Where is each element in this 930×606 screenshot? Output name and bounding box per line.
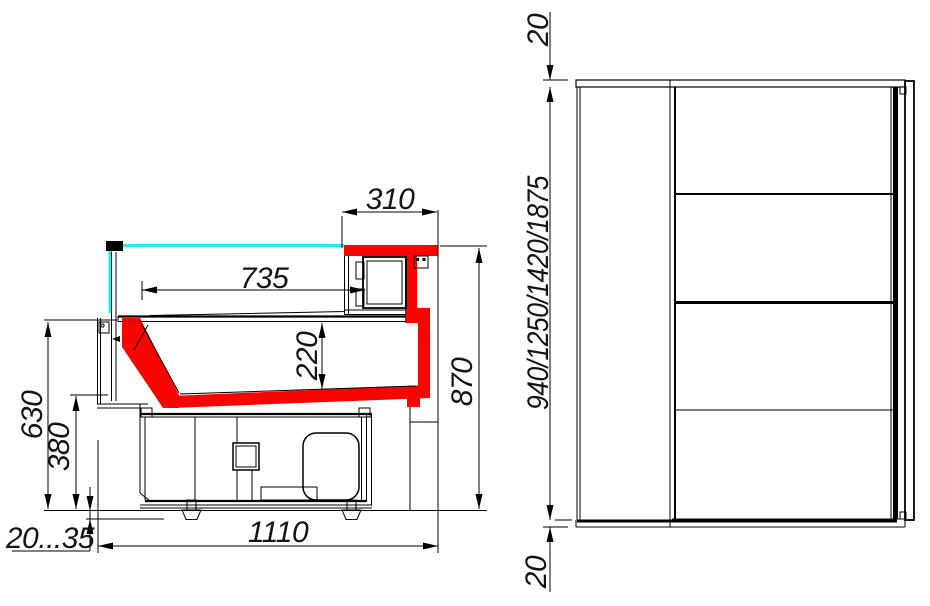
riser-fitting-dot1 (416, 258, 419, 261)
machine-compartment (141, 408, 370, 500)
profile-well-bottom (171, 386, 430, 409)
technical-drawing-canvas: 310 735 220 630 380 870 1110 20...35 20 … (0, 0, 930, 606)
profile-top-bar (344, 245, 438, 256)
left-foot-pad (182, 510, 201, 520)
drawing-svg: 310 735 220 630 380 870 1110 20...35 20 … (0, 0, 930, 606)
front-view: 20 940/1250/1420/1875 20 (520, 12, 914, 592)
rear-riser (356, 256, 428, 308)
arrow (422, 209, 437, 216)
arrow (547, 527, 554, 542)
profile-front-slope (122, 318, 179, 408)
section-linework-thick (118, 317, 406, 502)
profile-rear-lower (418, 322, 430, 386)
arrow (87, 496, 94, 511)
glass-top-horizontal (112, 244, 344, 247)
condensate-box (233, 443, 259, 470)
condensate-box-inner (236, 446, 256, 467)
frame-bracket-right (359, 408, 370, 417)
arrow (142, 287, 157, 294)
arrow (45, 494, 52, 509)
arrow (547, 505, 554, 520)
arrow (45, 322, 52, 337)
arrow (476, 494, 483, 509)
countertop-band (576, 80, 905, 87)
front-linework-thick (577, 303, 897, 522)
profile-rear-tab (407, 398, 420, 407)
right-foot-pad (342, 510, 361, 520)
arrow (73, 494, 80, 509)
arrow (98, 543, 113, 550)
compressor (303, 433, 359, 500)
dim-label-870: 870 (446, 357, 479, 406)
riser-box-inner (367, 261, 402, 304)
dim-label-380: 380 (43, 422, 76, 471)
arrow (547, 65, 554, 80)
front-fastener-pin (101, 324, 104, 327)
dim-label-1110: 1110 (248, 516, 309, 549)
dim-label-foot-range: 20...35 (5, 522, 95, 555)
arrow (476, 248, 483, 263)
dim-label-220: 220 (291, 331, 324, 381)
dim-label-735: 735 (240, 262, 289, 295)
riser-fitting-dot2 (423, 258, 426, 261)
arrow (342, 209, 357, 216)
section-view: 310 735 220 630 380 870 1110 20...35 (5, 183, 487, 555)
dim-label-bottom-20: 20 (520, 555, 553, 589)
dim-label-height-options: 940/1250/1420/1875 (522, 175, 555, 410)
frame-bracket-left (141, 408, 152, 417)
arrow (423, 543, 438, 550)
glass-panel (109, 244, 345, 313)
profile-rear-block (405, 308, 430, 323)
dim-label-top-20: 20 (522, 13, 555, 47)
riser-box (363, 257, 406, 308)
arrow (73, 396, 80, 411)
right-wall-bar (893, 87, 898, 519)
glass-top-cap (106, 241, 123, 251)
arrow (547, 87, 554, 102)
dim-label-310: 310 (366, 183, 415, 216)
end-glass-strip (905, 81, 914, 520)
